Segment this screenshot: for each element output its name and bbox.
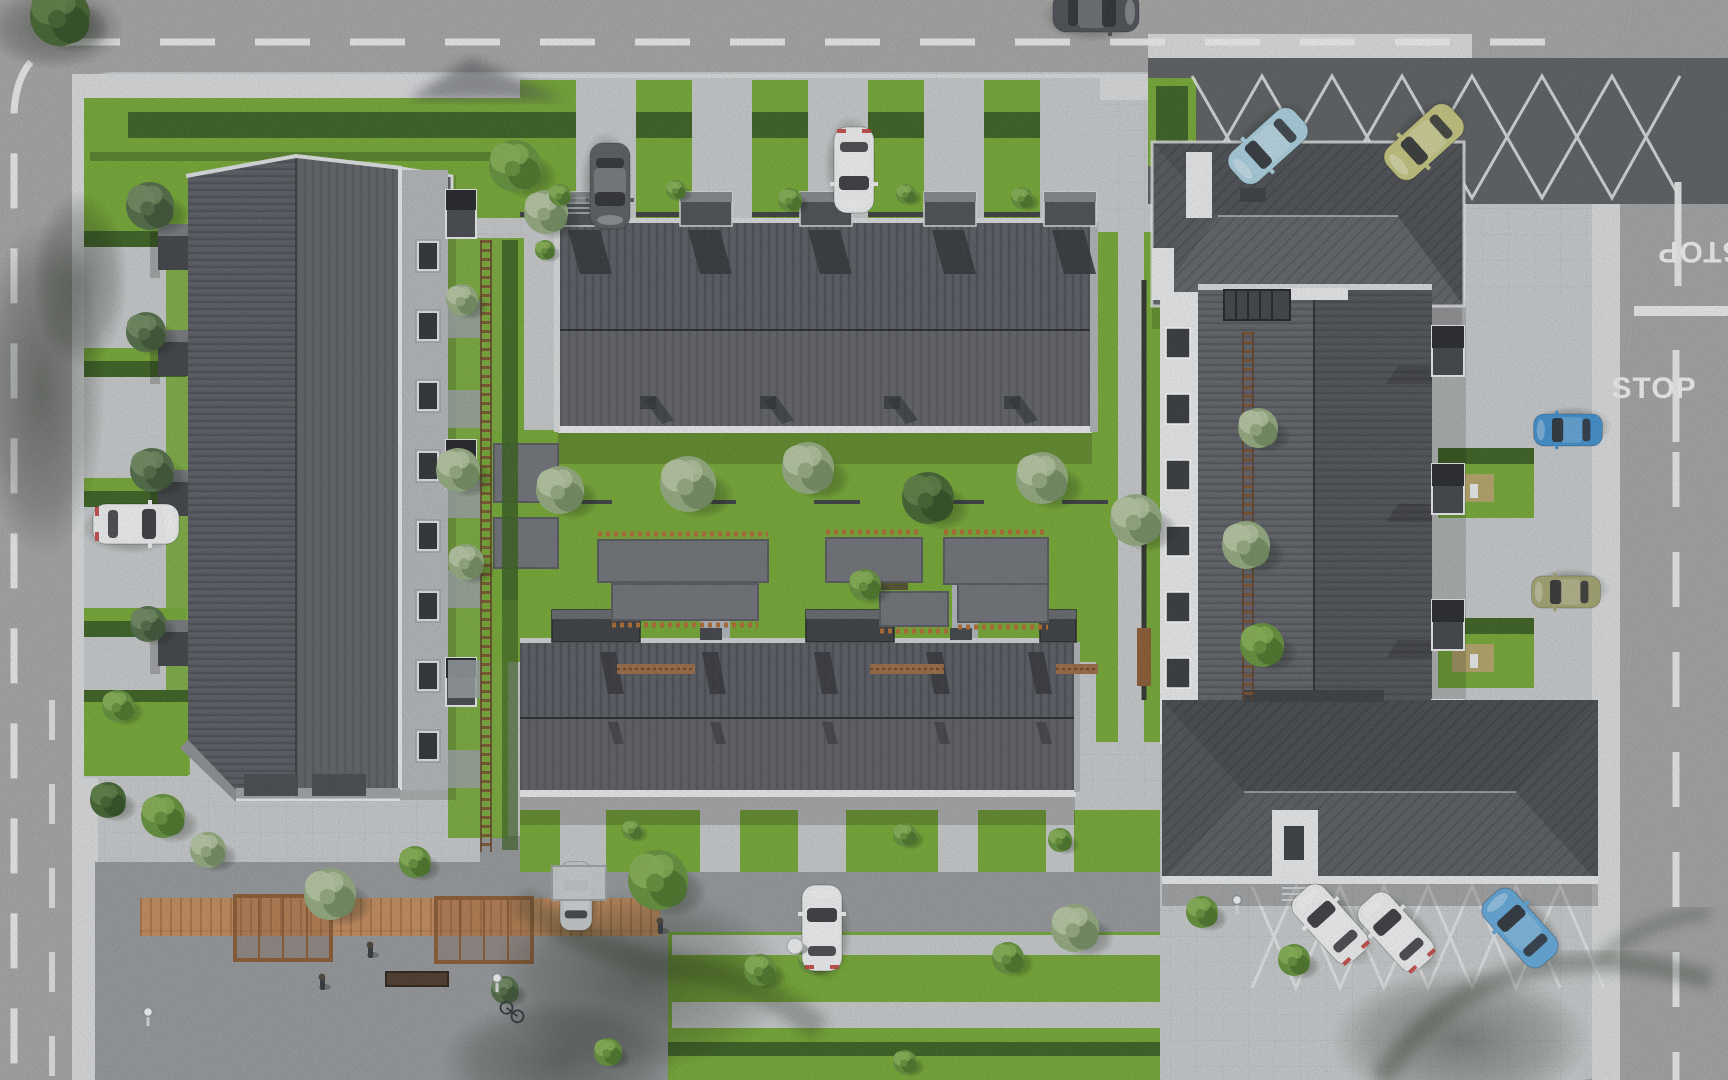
aerial-render: STOP STOP	[0, 0, 1728, 1080]
grain-light	[0, 0, 1728, 1080]
